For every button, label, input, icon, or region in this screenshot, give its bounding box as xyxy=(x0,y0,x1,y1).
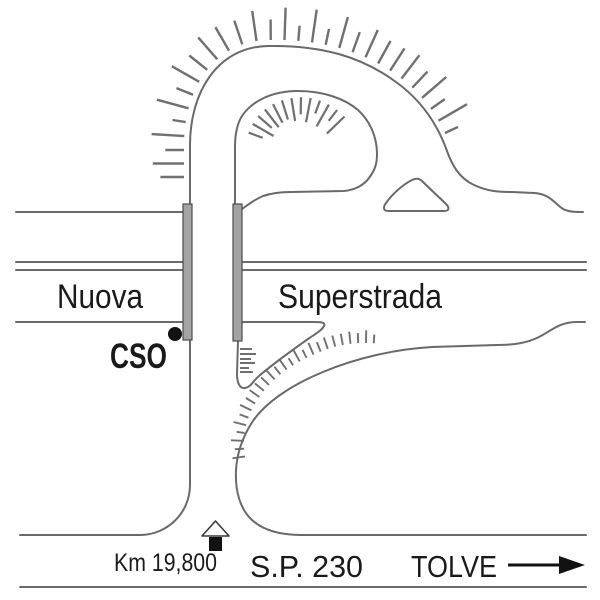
embankment-hatching-loop-inner xyxy=(249,97,355,138)
label-nuova: Nuova xyxy=(57,278,143,316)
label-cso: CSO xyxy=(110,337,167,376)
label-destination-tolve: TOLVE xyxy=(411,549,497,584)
bridge-pier-west xyxy=(183,204,192,340)
cso-point-dot xyxy=(168,327,182,341)
interchange-diagram: Nuova Superstrada CSO Km 19,800 S.P. 230… xyxy=(0,0,600,600)
loop-inner-edge xyxy=(235,91,377,209)
hill-symbol xyxy=(384,179,449,211)
interchange-sketch: Nuova Superstrada CSO Km 19,800 S.P. 230… xyxy=(0,0,600,600)
direction-arrow-icon xyxy=(508,556,585,574)
label-road-number: S.P. 230 xyxy=(250,549,363,584)
label-superstrada: Superstrada xyxy=(278,278,442,316)
bridge-pier-east xyxy=(233,204,242,341)
bridge-piers xyxy=(183,204,242,341)
km-stone-icon xyxy=(202,521,229,551)
label-km-marker: Km 19,800 xyxy=(114,549,217,577)
